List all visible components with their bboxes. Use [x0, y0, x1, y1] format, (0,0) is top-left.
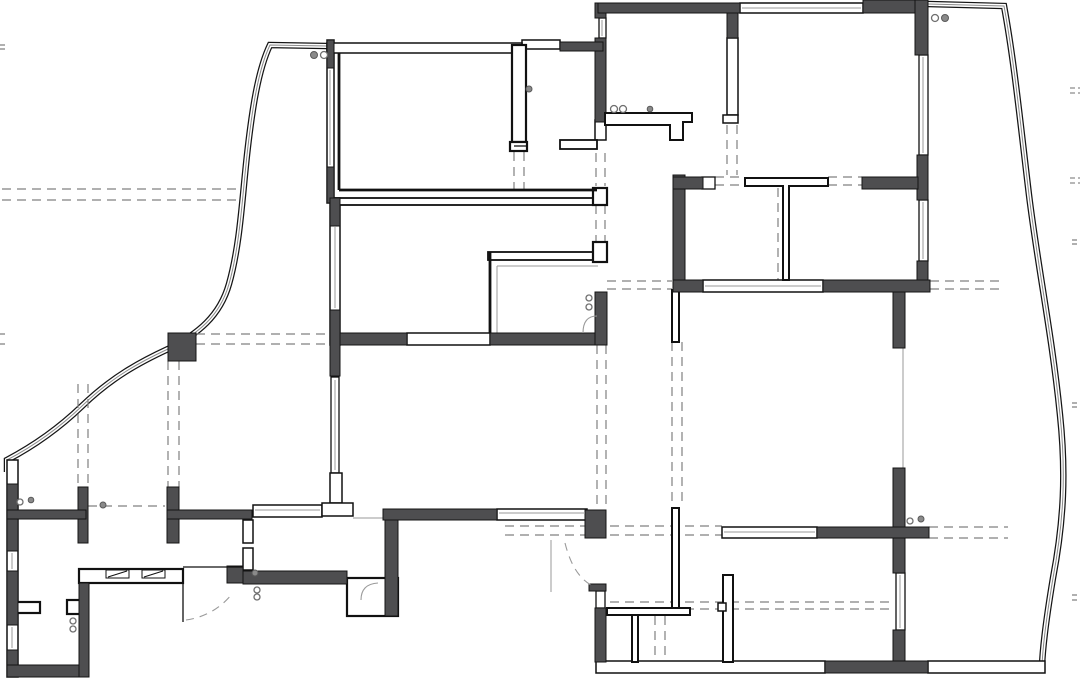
door-swing-arc	[186, 594, 232, 620]
symbol-circle	[620, 106, 627, 113]
symbol-circle	[311, 52, 318, 59]
symbol-circle	[70, 618, 76, 624]
wall-segment	[589, 584, 606, 591]
curtain-wall-glass-line	[928, 4, 1063, 666]
symbol-circle	[907, 518, 913, 524]
window-wall	[243, 548, 253, 570]
symbol-circle	[942, 15, 949, 22]
wall-segment	[490, 333, 607, 345]
window-wall	[333, 198, 593, 205]
window-wall	[672, 290, 679, 342]
window-wall	[512, 45, 526, 142]
wall-segment	[585, 510, 606, 538]
symbol-circle	[252, 570, 258, 576]
symbol-circle	[100, 502, 106, 508]
window-wall	[67, 600, 80, 614]
fixture-outline	[605, 113, 692, 140]
curtain-wall-gap	[928, 4, 1063, 666]
wall-segment	[383, 509, 497, 520]
window-wall	[330, 473, 342, 503]
window-wall	[928, 661, 1045, 673]
symbol-circle	[254, 594, 260, 600]
wall-segment	[915, 0, 928, 55]
symbol-circle	[611, 106, 618, 113]
wall-segment	[168, 333, 196, 361]
door-swing-arc	[565, 543, 591, 585]
wall-segment	[327, 40, 334, 68]
wall-segment	[673, 177, 703, 189]
curtain-wall-outline	[7, 45, 327, 472]
window-wall	[327, 43, 522, 53]
window-wall	[253, 505, 322, 517]
window-wall	[607, 608, 690, 615]
window-wall	[723, 115, 738, 123]
wall-segment	[825, 661, 928, 673]
wall-segment	[167, 510, 252, 519]
wall-segment	[385, 520, 398, 616]
wall-segment	[595, 608, 606, 662]
window-wall	[723, 575, 733, 662]
wall-segment	[823, 280, 930, 292]
wall-segment	[243, 571, 347, 584]
window-wall	[718, 603, 726, 611]
wall-segment	[917, 155, 928, 200]
window-wall	[243, 520, 253, 543]
wall-segment	[673, 175, 685, 292]
symbol-circle	[586, 304, 592, 310]
window-wall	[596, 661, 825, 673]
wall-segment	[7, 571, 18, 625]
window-wall	[702, 177, 715, 189]
wall-segment	[893, 468, 905, 573]
floor-plan-page	[0, 0, 1080, 680]
symbol-circle	[932, 15, 939, 22]
window-wall	[596, 591, 605, 608]
window-wall	[497, 509, 587, 520]
wall-segment	[727, 13, 738, 38]
symbol-circle	[918, 516, 924, 522]
wall-segment	[598, 3, 740, 13]
window-wall	[672, 508, 679, 608]
wall-segment	[673, 280, 703, 292]
curtain-wall-glass-line	[7, 45, 327, 472]
wall-segment	[595, 292, 607, 345]
symbol-circle	[254, 587, 260, 593]
curtain-wall-gap	[7, 45, 327, 472]
symbol-circle	[28, 497, 34, 503]
wall-segment	[817, 527, 929, 538]
wall-segment	[338, 333, 407, 345]
window-wall	[322, 503, 353, 516]
fixture-outline	[745, 178, 828, 280]
symbol-circle	[586, 295, 592, 301]
wall-segment	[330, 198, 340, 226]
wall-segment	[7, 665, 89, 677]
window-wall	[593, 242, 607, 262]
symbol-circle	[526, 86, 532, 92]
curtain-wall-outline	[928, 4, 1063, 666]
wall-segment	[560, 42, 603, 51]
window-wall	[79, 569, 183, 583]
wall-segment	[862, 177, 918, 189]
window-wall	[407, 333, 490, 345]
floor-plan-canvas	[0, 0, 1080, 680]
symbol-circle	[70, 626, 76, 632]
wall-segment	[893, 292, 905, 348]
symbol-circle	[17, 499, 23, 505]
wall-segment	[330, 310, 340, 376]
window-wall	[632, 615, 638, 662]
window-wall	[522, 40, 560, 49]
window-wall	[560, 140, 597, 149]
wall-segment	[7, 510, 86, 519]
wall-segment	[79, 583, 89, 677]
symbol-circle	[647, 106, 653, 112]
wall-segment	[227, 566, 243, 583]
symbol-circle	[321, 52, 328, 59]
window-wall	[727, 38, 738, 115]
window-wall	[488, 252, 600, 260]
